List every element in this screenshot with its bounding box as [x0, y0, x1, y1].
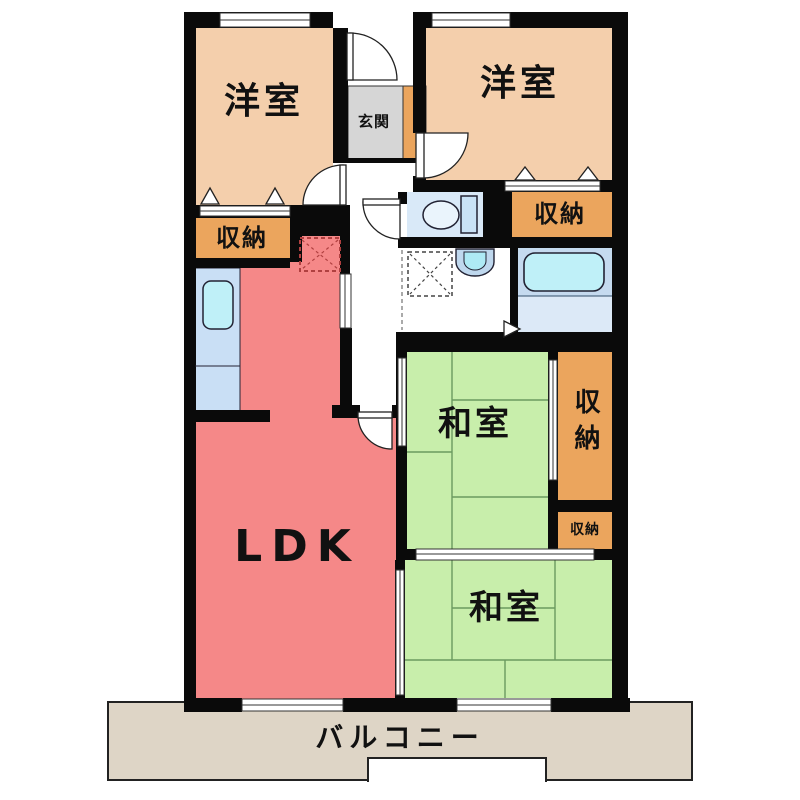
label-western-room-right: 洋室	[480, 66, 560, 102]
floor-plan: 洋室 洋室 玄関 収納 収納 収納 収納 LDK 和室 和室 バルコニー	[0, 0, 800, 800]
toilet-icon	[423, 201, 459, 229]
western-room-left-door-leaf	[340, 165, 346, 205]
western-room-right-door-leaf	[416, 133, 424, 178]
label-closet-left: 収納	[216, 226, 268, 250]
japanese-room-2	[404, 560, 612, 698]
toilet-door-leaf	[363, 199, 400, 205]
japanese-room-1	[407, 352, 548, 549]
washbasin-bowl-icon	[464, 252, 486, 270]
label-western-room-left: 洋室	[224, 84, 304, 120]
label-entrance: 玄関	[358, 115, 390, 130]
label-balcony: バルコニー	[315, 724, 484, 752]
ldk-door-leaf	[358, 412, 392, 418]
label-closet-top-right: 収納	[534, 202, 586, 226]
label-closet-tall-right: 収納	[572, 388, 598, 460]
bathroom-lower	[518, 296, 612, 332]
kitchen-sink-icon	[203, 281, 233, 329]
label-closet-small-right: 収納	[570, 523, 600, 537]
label-japanese-room-2: 和室	[469, 591, 543, 625]
floor-plan-drawing	[0, 0, 800, 800]
label-ldk: LDK	[234, 525, 360, 569]
entrance-door-leaf	[347, 33, 353, 80]
bathtub-icon	[524, 253, 604, 291]
label-japanese-room-1: 和室	[438, 407, 512, 441]
toilet-tank-icon	[461, 196, 477, 233]
